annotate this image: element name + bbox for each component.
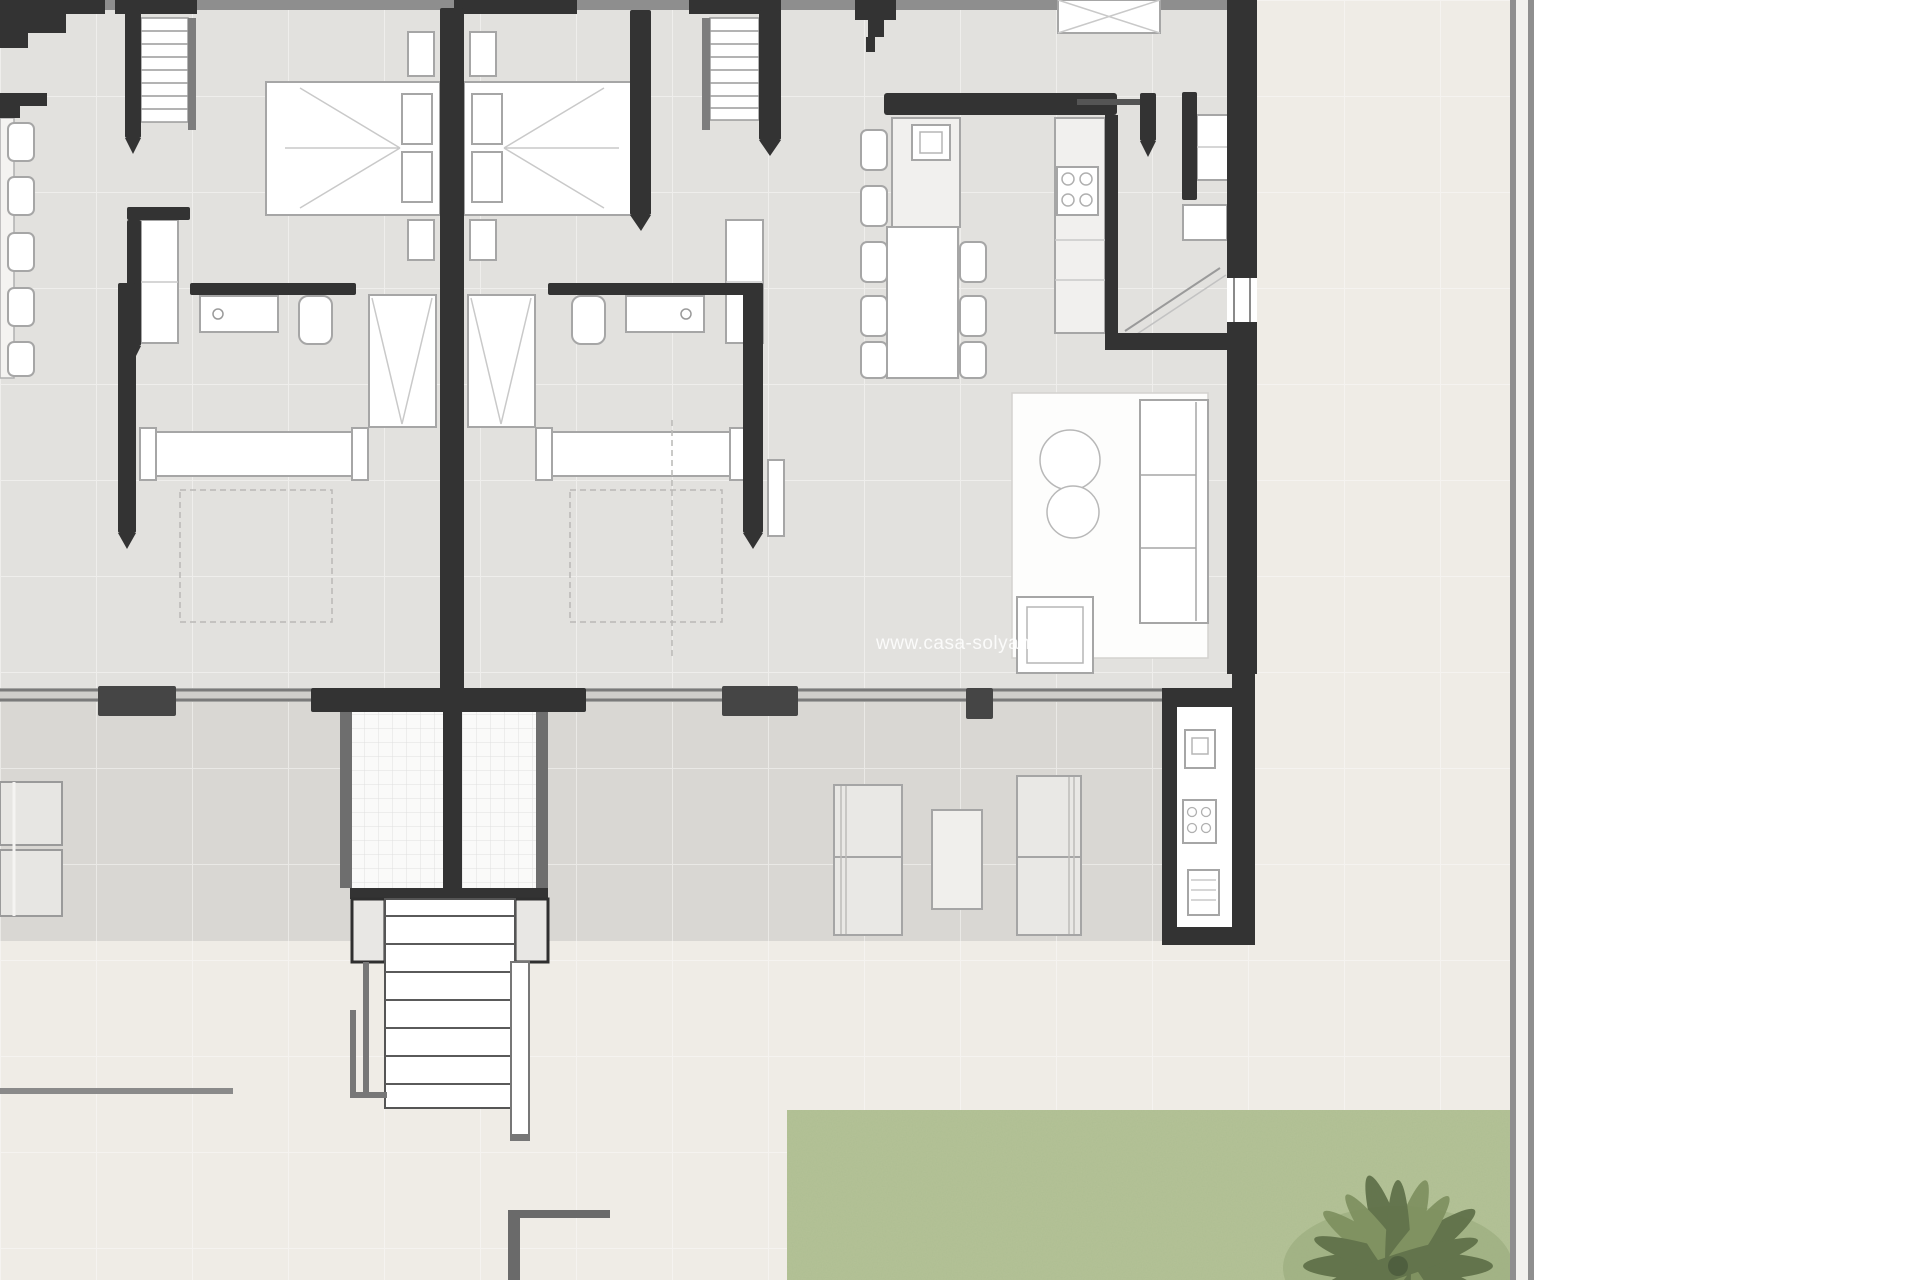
- living-room: [1012, 393, 1208, 673]
- door-leaf: [768, 460, 784, 536]
- stair-rail: [350, 1010, 356, 1098]
- pillow: [402, 152, 432, 202]
- sun-lounger: [1017, 776, 1081, 935]
- window-east: [1227, 278, 1257, 322]
- shower: [468, 295, 535, 427]
- nightstand: [470, 32, 496, 76]
- shower: [369, 295, 436, 427]
- watermark: www.casa-solyanza.c: [875, 633, 1067, 654]
- sofa: [1140, 400, 1208, 623]
- round-coffee-table: [1040, 430, 1100, 490]
- planter: [0, 782, 62, 916]
- cooktop: [1057, 167, 1098, 215]
- pillow: [402, 94, 432, 144]
- nightstand: [470, 220, 496, 260]
- sun-lounger: [834, 785, 902, 935]
- nightstand: [408, 32, 434, 76]
- nightstand: [408, 220, 434, 260]
- kitchen-island-sink: [912, 125, 950, 160]
- floor-plan-drawing: www.casa-solyanza.c: [0, 0, 1920, 1280]
- stair-upper-left: [141, 18, 196, 130]
- toilet: [572, 296, 605, 344]
- dining-table: [887, 227, 958, 378]
- pillow: [472, 94, 502, 144]
- lawn: [787, 1110, 1514, 1280]
- outdoor-kitchen: [1162, 672, 1255, 945]
- curb-line: [0, 1088, 233, 1094]
- stair-upper-right: [702, 18, 759, 130]
- washbasin: [626, 296, 704, 332]
- pillow: [472, 152, 502, 202]
- toilet: [299, 296, 332, 344]
- stair-rail: [511, 962, 529, 1140]
- wardrobe-top-right: [1058, 0, 1160, 33]
- counter: [140, 432, 368, 476]
- outdoor-grill: [1183, 800, 1216, 843]
- stair-rail: [363, 962, 369, 1097]
- outdoor-fridge: [1188, 870, 1219, 915]
- page-margin: [1510, 0, 1920, 1280]
- outdoor-sink: [1185, 730, 1215, 768]
- counter: [536, 432, 746, 476]
- wardrobe: [141, 220, 178, 343]
- washbasin: [200, 296, 278, 332]
- kitchen-run: [1055, 118, 1105, 333]
- terrace-table: [932, 810, 982, 909]
- floor-plan-page: www.casa-solyanza.c: [0, 0, 1920, 1280]
- round-coffee-table: [1047, 486, 1099, 538]
